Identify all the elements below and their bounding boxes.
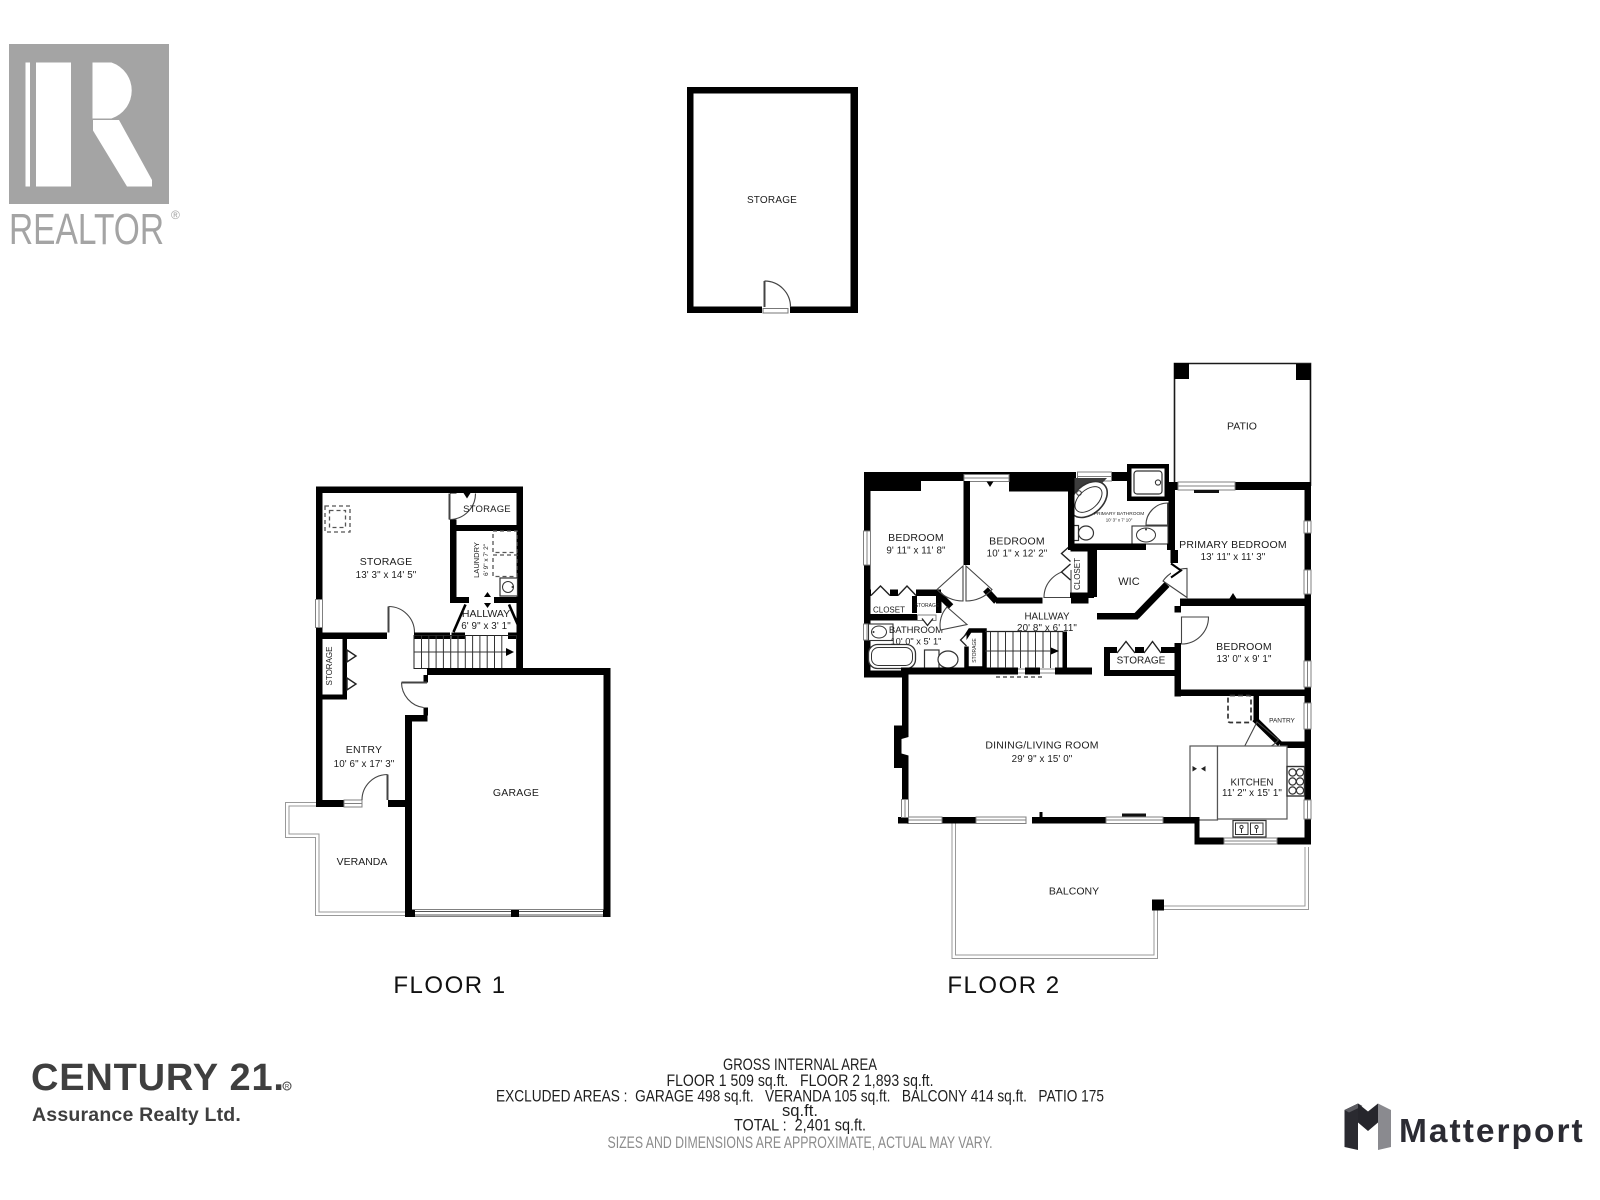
svg-text:10' 3" x 7' 10": 10' 3" x 7' 10" bbox=[1106, 518, 1133, 523]
svg-text:STORAGE: STORAGE bbox=[360, 556, 413, 568]
svg-text:29' 9" x 15' 0": 29' 9" x 15' 0" bbox=[1012, 754, 1073, 765]
svg-text:6' 9" x 7' 2": 6' 9" x 7' 2" bbox=[483, 543, 490, 576]
svg-text:HALLWAY: HALLWAY bbox=[462, 608, 510, 620]
svg-text:ENTRY: ENTRY bbox=[346, 744, 382, 756]
svg-text:KITCHEN: KITCHEN bbox=[1230, 778, 1273, 789]
svg-text:13' 11" x 11' 3": 13' 11" x 11' 3" bbox=[1201, 552, 1266, 563]
svg-text:CLOSET: CLOSET bbox=[873, 606, 905, 615]
svg-text:Matterport: Matterport bbox=[1399, 1113, 1585, 1150]
svg-text:BEDROOM: BEDROOM bbox=[888, 532, 944, 544]
svg-text:SIZES AND DIMENSIONS ARE APPRO: SIZES AND DIMENSIONS ARE APPROXIMATE, AC… bbox=[608, 1134, 993, 1152]
svg-text:9' 11" x 11' 8": 9' 11" x 11' 8" bbox=[886, 546, 946, 557]
svg-text:FLOOR 2: FLOOR 2 bbox=[947, 972, 1060, 999]
svg-text:20' 8" x 6' 11": 20' 8" x 6' 11" bbox=[1017, 623, 1077, 634]
svg-text:DINING/LIVING ROOM: DINING/LIVING ROOM bbox=[985, 740, 1098, 752]
svg-text:BALCONY: BALCONY bbox=[1049, 886, 1099, 898]
svg-text:STORAGE: STORAGE bbox=[915, 603, 940, 609]
svg-text:WIC: WIC bbox=[1118, 576, 1139, 588]
svg-text:CLOSET: CLOSET bbox=[1073, 558, 1082, 590]
svg-text:10' 0" x 5' 1": 10' 0" x 5' 1" bbox=[891, 637, 942, 647]
svg-text:®: ® bbox=[171, 208, 180, 222]
svg-text:CENTURY 21.: CENTURY 21. bbox=[31, 1057, 285, 1099]
svg-text:BEDROOM: BEDROOM bbox=[989, 536, 1045, 548]
svg-text:11' 2" x 15' 1": 11' 2" x 15' 1" bbox=[1222, 788, 1282, 799]
svg-text:HALLWAY: HALLWAY bbox=[1024, 612, 1069, 623]
svg-text:LAUNDRY: LAUNDRY bbox=[472, 542, 481, 578]
svg-text:13' 0" x 9' 1": 13' 0" x 9' 1" bbox=[1216, 654, 1272, 665]
svg-text:PATIO: PATIO bbox=[1227, 421, 1257, 433]
svg-text:STORAGE: STORAGE bbox=[463, 504, 511, 515]
svg-text:STORAGE: STORAGE bbox=[325, 647, 334, 686]
svg-text:STORAGE: STORAGE bbox=[747, 195, 797, 206]
svg-text:PANTRY: PANTRY bbox=[1269, 718, 1295, 725]
svg-text:TOTAL : 2,401 sq.ft.: TOTAL : 2,401 sq.ft. bbox=[734, 1116, 866, 1135]
svg-text:STORAGE: STORAGE bbox=[972, 638, 978, 663]
svg-text:PRIMARY BATHROOM: PRIMARY BATHROOM bbox=[1094, 511, 1144, 517]
svg-text:BEDROOM: BEDROOM bbox=[1216, 641, 1272, 653]
svg-text:FLOOR 1: FLOOR 1 bbox=[393, 972, 506, 999]
svg-text:13' 3" x 14' 5": 13' 3" x 14' 5" bbox=[356, 570, 417, 581]
svg-text:6' 9" x 3' 1": 6' 9" x 3' 1" bbox=[461, 621, 511, 632]
svg-text:PRIMARY BEDROOM: PRIMARY BEDROOM bbox=[1179, 539, 1287, 551]
svg-text:GARAGE: GARAGE bbox=[493, 787, 539, 799]
svg-text:Assurance Realty Ltd.: Assurance Realty Ltd. bbox=[32, 1104, 241, 1126]
svg-text:10' 6" x 17' 3": 10' 6" x 17' 3" bbox=[334, 759, 395, 770]
svg-text:STORAGE: STORAGE bbox=[1117, 656, 1166, 667]
svg-text:10' 1" x 12' 2": 10' 1" x 12' 2" bbox=[987, 549, 1048, 560]
svg-text:R: R bbox=[285, 1085, 290, 1091]
svg-text:VERANDA: VERANDA bbox=[337, 856, 388, 868]
svg-text:BATHROOM: BATHROOM bbox=[889, 625, 943, 636]
svg-text:REALTOR: REALTOR bbox=[9, 205, 164, 254]
